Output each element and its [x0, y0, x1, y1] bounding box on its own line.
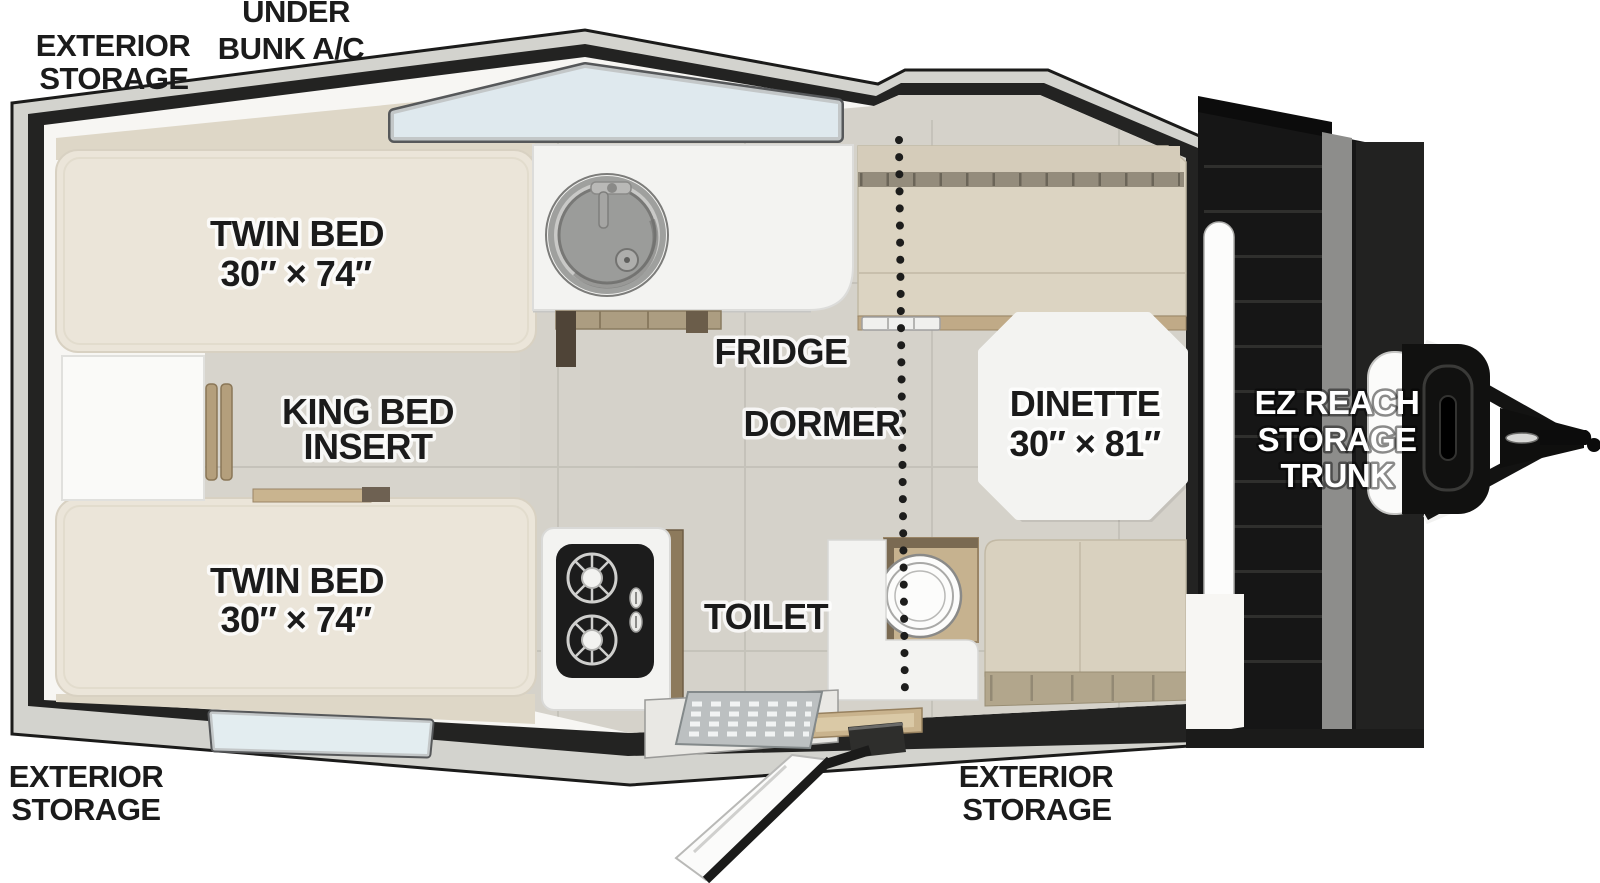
floorplan-page: EXTERIOR STORAGE UNDER BUNK A/C TWIN BED… — [0, 0, 1600, 883]
label-exterior-storage-br-line1: EXTERIOR — [959, 759, 1114, 794]
hitch-handle — [1540, 430, 1591, 445]
label-dinette-line2: 30″ × 81″ — [1009, 423, 1160, 464]
label-ez-reach-line1: EZ REACH — [1255, 384, 1420, 421]
cabinet-handle-left — [206, 384, 217, 480]
floorplan-svg: EXTERIOR STORAGE UNDER BUNK A/C TWIN BED… — [0, 0, 1600, 883]
label-exterior-storage-bl-line2: STORAGE — [11, 792, 160, 827]
label-twin-bed-bottom-line1: TWIN BED — [210, 560, 384, 601]
dinette-bench-rear — [858, 146, 1186, 330]
bottom-storage-window — [212, 714, 430, 754]
front-bottom-band — [1186, 729, 1424, 748]
king-insert-wood-sill — [253, 489, 371, 502]
front-corner-wall — [1186, 594, 1244, 736]
label-under-bunk-ac-line2: BUNK A/C — [218, 31, 365, 66]
label-exterior-storage-br-line2: STORAGE — [962, 792, 1111, 827]
bench-seat-edge — [985, 672, 1192, 706]
dinette-bench-front — [985, 540, 1192, 706]
label-dormer: DORMER — [744, 403, 901, 444]
cabinet-handle-right — [221, 384, 232, 480]
label-fridge: FRIDGE — [714, 331, 847, 372]
toilet-bowl — [879, 555, 961, 637]
label-exterior-storage-bl-line1: EXTERIOR — [9, 759, 164, 794]
storage-cabinet — [62, 356, 204, 500]
label-twin-bed-top-line2: 30″ × 74″ — [220, 253, 371, 294]
label-king-bed-insert-line2: INSERT — [303, 426, 433, 467]
label-exterior-storage-top-line2: STORAGE — [39, 61, 188, 96]
entry-doorway — [645, 690, 922, 880]
stove-cabinet — [542, 528, 683, 710]
label-dinette-line1: DINETTE — [1010, 383, 1161, 424]
king-insert-wood-block — [362, 487, 390, 502]
front-window-gap — [1204, 222, 1234, 612]
label-ez-reach-line3: TRUNK — [1281, 457, 1395, 494]
label-exterior-storage-top-line1: EXTERIOR — [36, 28, 191, 63]
label-twin-bed-top-line1: TWIN BED — [210, 213, 384, 254]
label-under-bunk-ac-line1: UNDER — [242, 0, 350, 29]
entry-step — [676, 692, 822, 748]
label-toilet: TOILET — [704, 596, 829, 637]
label-twin-bed-bottom-line2: 30″ × 74″ — [220, 599, 371, 640]
label-ez-reach-line2: STORAGE — [1257, 421, 1416, 458]
